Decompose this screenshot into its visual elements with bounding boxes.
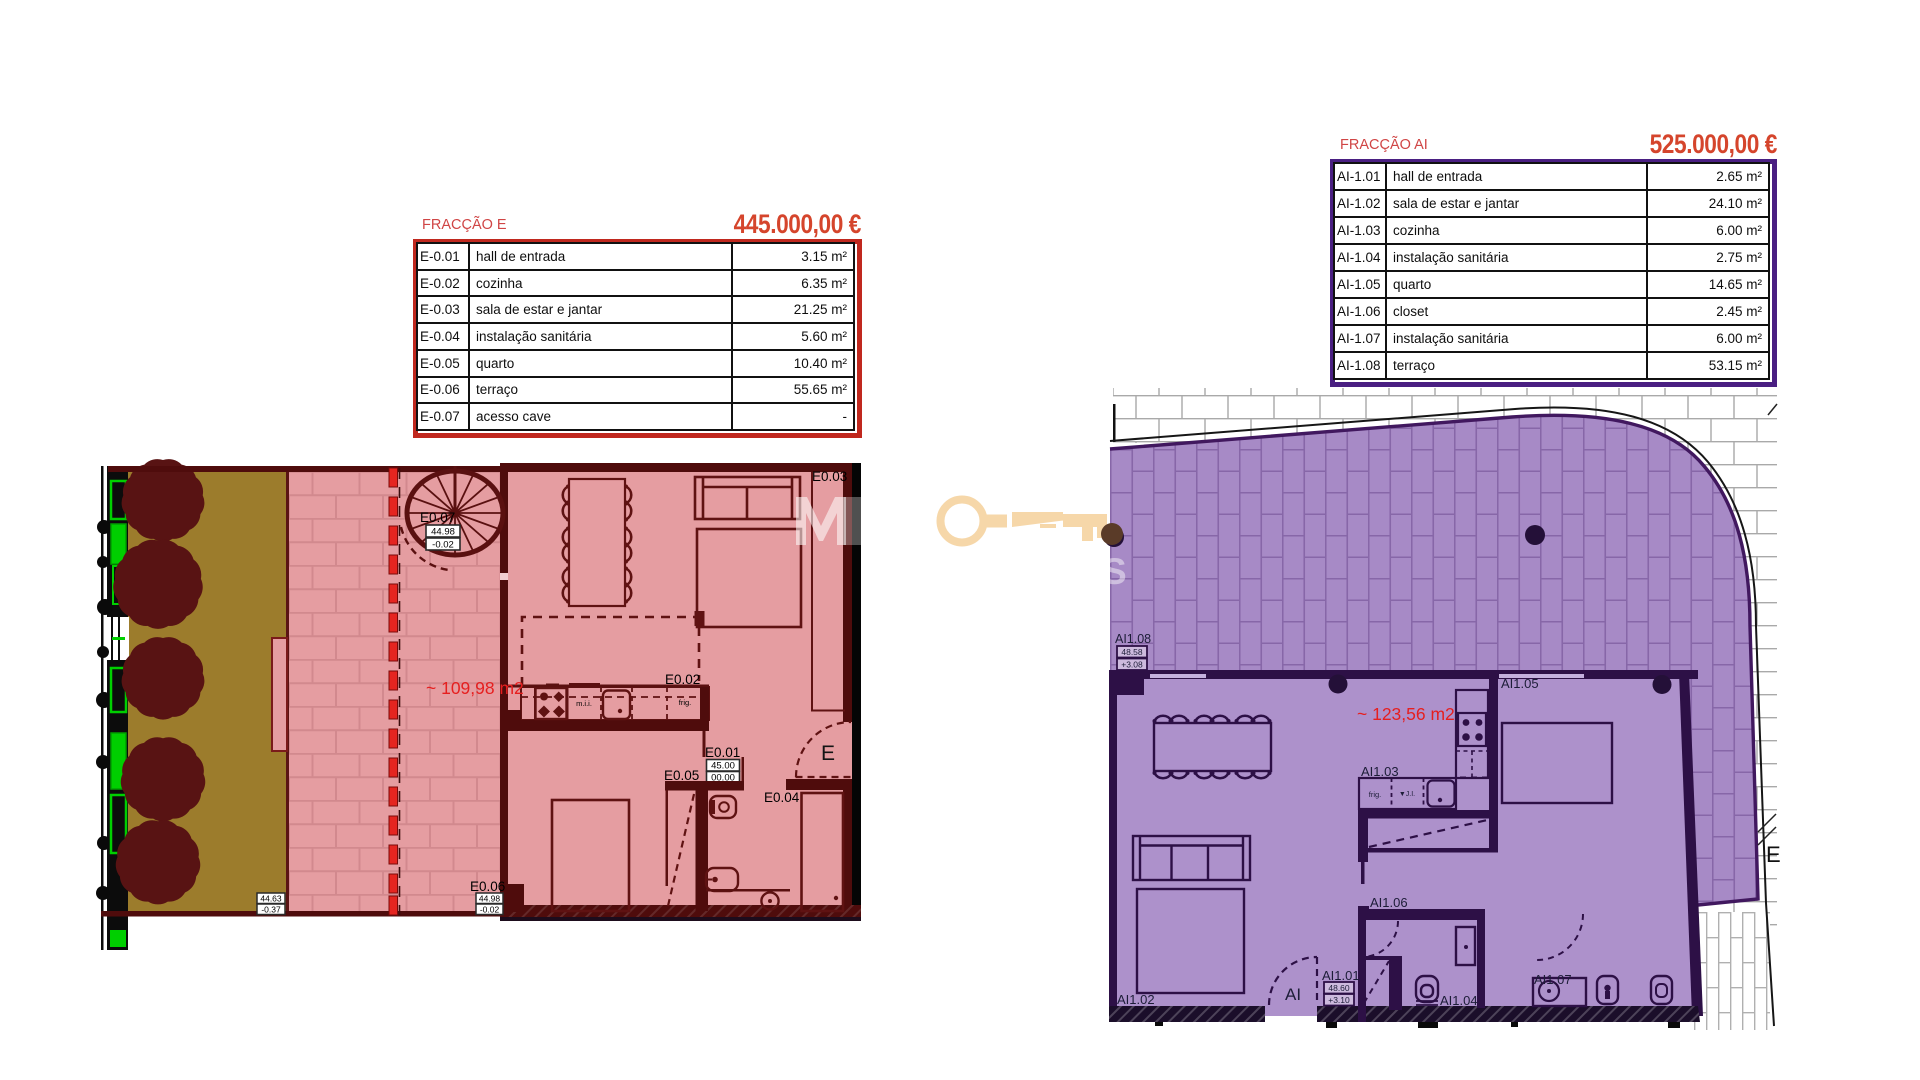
svg-text:+3.10: +3.10 xyxy=(1328,995,1350,1005)
svg-text:E0.06: E0.06 xyxy=(470,879,505,894)
svg-text:-0.37: -0.37 xyxy=(261,905,281,915)
svg-text:AI1.06: AI1.06 xyxy=(1370,895,1408,910)
svg-text:AI1.03: AI1.03 xyxy=(1361,764,1399,779)
svg-text:AI1.08: AI1.08 xyxy=(1115,632,1151,646)
svg-text:48.58: 48.58 xyxy=(1121,647,1143,657)
svg-text:AI1.05: AI1.05 xyxy=(1501,676,1539,691)
svg-text:E0.07: E0.07 xyxy=(420,510,455,525)
svg-text:E0.05: E0.05 xyxy=(664,768,699,783)
svg-text:AI1.01: AI1.01 xyxy=(1322,968,1360,983)
svg-text:▼J.I.: ▼J.I. xyxy=(1399,791,1415,798)
svg-text:frig.: frig. xyxy=(1369,790,1382,799)
svg-text:44.63: 44.63 xyxy=(260,894,282,904)
svg-text:AI: AI xyxy=(1285,985,1301,1004)
svg-text:E: E xyxy=(821,742,835,765)
svg-text:frig.: frig. xyxy=(679,698,692,707)
svg-text:-0.02: -0.02 xyxy=(480,905,500,915)
svg-text:AI1.04: AI1.04 xyxy=(1440,993,1478,1008)
svg-text:44.98: 44.98 xyxy=(431,527,455,538)
svg-text:~ 123,56 m2: ~ 123,56 m2 xyxy=(1357,704,1455,724)
svg-text:E0.03: E0.03 xyxy=(812,469,847,484)
svg-text:-0.02: -0.02 xyxy=(432,540,454,551)
svg-text:48.60: 48.60 xyxy=(1328,983,1350,993)
svg-text:E0.02: E0.02 xyxy=(665,672,700,687)
svg-text:AI1.07: AI1.07 xyxy=(1534,972,1572,987)
svg-text:E0.04: E0.04 xyxy=(764,790,800,805)
svg-text:S: S xyxy=(1102,551,1127,592)
svg-text:E0.01: E0.01 xyxy=(705,745,740,760)
svg-text:45.00: 45.00 xyxy=(711,761,735,772)
svg-text:~ 109,98 m2: ~ 109,98 m2 xyxy=(426,678,524,698)
svg-text:m.i.i.: m.i.i. xyxy=(576,699,592,708)
svg-text:AI1.02: AI1.02 xyxy=(1117,992,1155,1007)
svg-text:+3.08: +3.08 xyxy=(1121,660,1143,670)
svg-text:E: E xyxy=(1766,842,1781,867)
svg-text:44.98: 44.98 xyxy=(479,894,501,904)
